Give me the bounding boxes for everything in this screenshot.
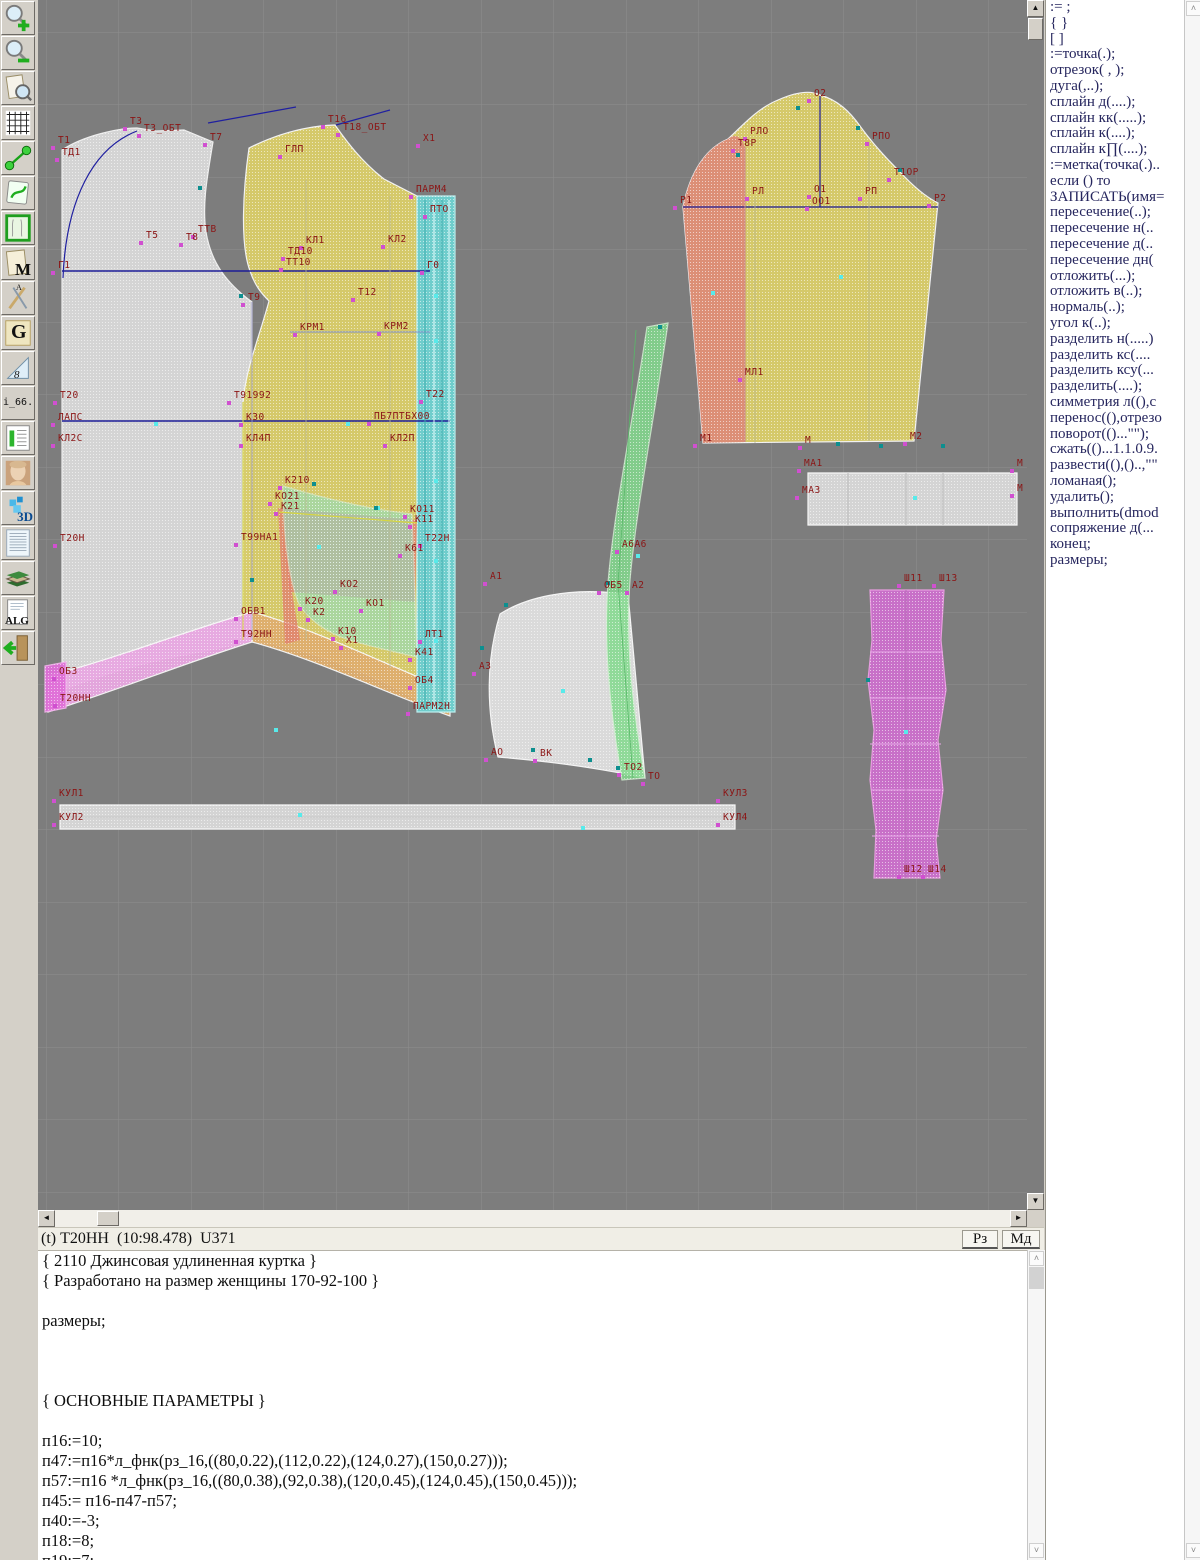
three-d-tool[interactable]: 3D: [1, 491, 35, 525]
command-item[interactable]: сжать(()...1.1.0.9.: [1046, 442, 1184, 458]
ruler-glyph: 8: [14, 370, 20, 381]
point-label: РЛО: [750, 126, 769, 137]
point-label: Т92НН: [241, 629, 272, 640]
g-curves-tool[interactable]: G: [1, 316, 35, 350]
point-marker: [798, 446, 802, 450]
point-marker: [359, 609, 363, 613]
editor-vscroll-thumb[interactable]: [1029, 1267, 1044, 1289]
cyan-marker: [434, 339, 438, 343]
editor-line: { 2110 Джинсовая удлиненная куртка }: [38, 1251, 1027, 1271]
editor-line: п19:=7;: [38, 1551, 1027, 1560]
scroll-left-button[interactable]: ◄: [38, 1210, 55, 1227]
cyan-marker: [154, 422, 158, 426]
command-item[interactable]: нормаль(..);: [1046, 300, 1184, 316]
point-label: Т1ОР: [894, 167, 919, 178]
panel-scroll-down-icon[interactable]: ˅: [1186, 1543, 1200, 1558]
command-item[interactable]: := ;: [1046, 0, 1184, 16]
point-label: ЛТ1: [425, 629, 444, 640]
teal-marker: [480, 646, 484, 650]
editor-line: { ОСНОВНЫЕ ПАРАМЕТРЫ }: [38, 1391, 1027, 1411]
point-marker: [55, 158, 59, 162]
m-document-tool[interactable]: M: [1, 246, 35, 280]
point-marker: [483, 582, 487, 586]
command-item[interactable]: разделить ксу(...: [1046, 363, 1184, 379]
point-marker: [406, 712, 410, 716]
point-label: Х1: [346, 635, 358, 646]
teal-marker: [941, 444, 945, 448]
point-label: ВК: [540, 748, 552, 759]
drafting-tool[interactable]: A: [1, 281, 35, 315]
teal-marker: [836, 442, 840, 446]
cyan-marker: [904, 730, 908, 734]
point-label: КУЛ4: [723, 812, 748, 823]
zoom-in-icon: [2, 2, 34, 34]
grid-icon: [2, 107, 34, 139]
point-marker: [597, 591, 601, 595]
point-label: К210: [285, 475, 310, 486]
point-marker: [693, 444, 697, 448]
editor-line: размеры;: [38, 1311, 1027, 1331]
point-label: Т99НА1: [241, 532, 278, 543]
pattern-frame-icon: [2, 212, 34, 244]
cyan-marker: [274, 728, 278, 732]
scroll-left-icon: ◄: [43, 1213, 51, 1222]
teal-marker: [856, 126, 860, 130]
point-label: Т18_ОБТ: [343, 122, 387, 133]
text-page-icon: [2, 527, 34, 559]
point-marker: [234, 640, 238, 644]
point-marker: [418, 640, 422, 644]
editor-line: [38, 1351, 1027, 1371]
point-label: Т9: [248, 292, 260, 303]
cyan-marker: [317, 545, 321, 549]
preview-tool[interactable]: [1, 71, 35, 105]
command-item[interactable]: конец;: [1046, 537, 1184, 553]
command-item[interactable]: разделить н(.....): [1046, 332, 1184, 348]
scroll-up-icon: ▲: [1032, 3, 1040, 12]
point-label: Ш11: [904, 573, 923, 584]
point-marker: [797, 469, 801, 473]
point-marker: [903, 442, 907, 446]
point-marker: [615, 550, 619, 554]
point-marker: [472, 672, 476, 676]
command-item[interactable]: сопряжение д(...: [1046, 521, 1184, 537]
editor-line: [38, 1371, 1027, 1391]
scroll-right-icon: ►: [1015, 1213, 1023, 1222]
g-curves-glyph: G: [11, 322, 27, 342]
measure-tool[interactable]: [1, 141, 35, 175]
point-label: Р1: [680, 195, 692, 206]
point-marker: [641, 782, 645, 786]
point-label: КЛ2: [388, 234, 407, 245]
command-item[interactable]: [ ]: [1046, 32, 1184, 48]
command-item[interactable]: угол к(..);: [1046, 316, 1184, 332]
command-item[interactable]: отложить в(..);: [1046, 284, 1184, 300]
alg-tool[interactable]: ALG: [1, 596, 35, 630]
point-marker: [403, 515, 407, 519]
point-marker: [239, 423, 243, 427]
point-label: Т1: [58, 135, 70, 146]
point-label: Т20Н: [60, 533, 85, 544]
canvas-vscroll-thumb[interactable]: [1028, 18, 1043, 40]
point-label: О1: [814, 184, 826, 195]
zoom-in-tool[interactable]: [1, 1, 35, 35]
point-label: Т12: [358, 287, 377, 298]
point-marker: [927, 204, 931, 208]
point-marker: [858, 197, 862, 201]
panel-scroll-up-icon[interactable]: ˄: [1186, 1, 1200, 16]
point-marker: [1010, 469, 1014, 473]
point-label: Т22: [426, 389, 445, 400]
point-marker: [738, 378, 742, 382]
command-item[interactable]: развести((),()..,"": [1046, 458, 1184, 474]
point-marker: [53, 401, 57, 405]
point-marker: [932, 584, 936, 588]
point-marker: [52, 677, 56, 681]
editor-vscrollbar[interactable]: ˄ ˅: [1027, 1250, 1045, 1560]
point-label: Х1: [423, 133, 435, 144]
point-label: Т7: [210, 132, 222, 143]
editor-scroll-down-icon[interactable]: ˅: [1029, 1543, 1044, 1558]
point-marker: [51, 146, 55, 150]
m-document-glyph: M: [15, 261, 31, 278]
editor-scroll-up-icon[interactable]: ˄: [1029, 1251, 1044, 1266]
books-tool[interactable]: [1, 561, 35, 595]
point-marker: [731, 149, 735, 153]
point-label: К21: [281, 501, 300, 512]
point-marker: [139, 241, 143, 245]
point-label: Т8: [186, 232, 198, 243]
editor-line: п18:=8;: [38, 1531, 1027, 1551]
point-marker: [137, 134, 141, 138]
point-marker: [51, 423, 55, 427]
point-marker: [367, 422, 371, 426]
point-marker: [333, 590, 337, 594]
point-marker: [278, 486, 282, 490]
sketch-tool[interactable]: [1, 176, 35, 210]
point-marker: [53, 544, 57, 548]
drawing-canvas[interactable]: Т1ТД1Т3Т3_ОБТТ7Т5Т8ТТВГ1Т9Т20ЛАПСКЛ2СТ20…: [38, 0, 1027, 1210]
point-label: К30: [246, 412, 265, 423]
scroll-up-button[interactable]: ▲: [1027, 0, 1044, 17]
point-label: КО1: [366, 598, 385, 609]
point-label: КРМ1: [300, 322, 325, 333]
command-item[interactable]: сплайн д(....);: [1046, 95, 1184, 111]
cyan-marker: [581, 826, 585, 830]
i66-tool[interactable]: i_66.: [1, 386, 35, 420]
point-label: ТД1: [62, 147, 81, 158]
point-label: Т3: [130, 116, 142, 127]
point-marker: [423, 215, 427, 219]
point-label: КО2: [340, 579, 359, 590]
command-item[interactable]: ЗАПИСАТЬ(имя=: [1046, 190, 1184, 206]
point-label: К20: [305, 596, 324, 607]
point-label: ОБ3: [59, 666, 78, 677]
pattern-cad-window: { "toolbar": { "items": [ {"name":"zoom-…: [0, 0, 1200, 1560]
teal-marker: [736, 153, 740, 157]
point-label: К41: [415, 647, 434, 658]
canvas-hscroll-thumb[interactable]: [97, 1211, 119, 1226]
drafting-glyph: A: [16, 284, 22, 292]
size-table-tool[interactable]: [1, 421, 35, 455]
teal-marker: [312, 482, 316, 486]
cyan-marker: [434, 559, 438, 563]
command-item[interactable]: поворот(()..."");: [1046, 427, 1184, 443]
command-item[interactable]: сплайн к(....);: [1046, 126, 1184, 142]
cyan-marker: [434, 294, 438, 298]
editor-line: [38, 1331, 1027, 1351]
left-toolbar: M A G 8 i_66. 3D ALG: [0, 0, 37, 1560]
teal-marker: [866, 678, 870, 682]
point-marker: [234, 543, 238, 547]
point-label: КЛ2П: [390, 433, 415, 444]
point-marker: [239, 444, 243, 448]
cyan-marker: [711, 291, 715, 295]
cyan-marker: [561, 689, 565, 693]
point-marker: [52, 823, 56, 827]
command-item[interactable]: пересечение дн(: [1046, 253, 1184, 269]
point-marker: [274, 512, 278, 516]
point-marker: [897, 584, 901, 588]
command-item[interactable]: пересечение(..);: [1046, 205, 1184, 221]
point-marker: [807, 195, 811, 199]
point-marker: [51, 271, 55, 275]
point-label: А1: [490, 571, 502, 582]
command-item[interactable]: сплайн кк(.....);: [1046, 111, 1184, 127]
three-d-glyph: 3D: [17, 510, 33, 523]
point-label: ПАРМ2Н: [413, 701, 450, 712]
zoom-out-tool[interactable]: [1, 36, 35, 70]
portrait-icon: [2, 457, 34, 489]
measure-icon: [2, 142, 34, 174]
point-marker: [897, 875, 901, 879]
command-item[interactable]: симметрия л((),с: [1046, 395, 1184, 411]
point-marker: [625, 591, 629, 595]
point-marker: [408, 686, 412, 690]
point-marker: [227, 401, 231, 405]
pattern-drawing[interactable]: Т1ТД1Т3Т3_ОБТТ7Т5Т8ТТВГ1Т9Т20ЛАПСКЛ2СТ20…: [38, 0, 1027, 1210]
point-label: ПАРМ4: [416, 184, 447, 195]
command-item[interactable]: выполнить(dmod: [1046, 506, 1184, 522]
command-item[interactable]: удалить();: [1046, 490, 1184, 506]
point-label: А3: [479, 661, 491, 672]
point-marker: [203, 143, 207, 147]
point-label: М: [805, 435, 811, 446]
scroll-right-button[interactable]: ►: [1010, 1210, 1027, 1227]
point-marker: [408, 525, 412, 529]
point-marker: [416, 144, 420, 148]
point-label: АО: [491, 747, 503, 758]
point-label: К61: [405, 543, 424, 554]
teal-marker: [796, 106, 800, 110]
cyan-marker: [346, 422, 350, 426]
point-label: ПБ7ПТБХ00: [374, 411, 430, 422]
preview-icon: [2, 72, 34, 104]
point-marker: [533, 759, 537, 763]
point-label: Т5: [146, 230, 158, 241]
point-marker: [293, 333, 297, 337]
point-label: М1: [700, 433, 712, 444]
command-item[interactable]: отрезок( , );: [1046, 63, 1184, 79]
cyan-marker: [298, 813, 302, 817]
command-item[interactable]: ломаная();: [1046, 474, 1184, 490]
command-item[interactable]: размеры;: [1046, 553, 1184, 569]
point-label: ОО1: [812, 196, 831, 207]
teal-marker: [616, 766, 620, 770]
point-marker: [52, 799, 56, 803]
point-marker: [241, 303, 245, 307]
point-label: Т91992: [234, 390, 271, 401]
point-marker: [716, 799, 720, 803]
point-marker: [409, 195, 413, 199]
editor-line: п57:=п16 *л_фнк(рз_16,((80,0.38),(92,0.3…: [38, 1471, 1027, 1491]
point-label: М2: [910, 431, 922, 442]
point-marker: [1010, 494, 1014, 498]
point-marker: [53, 704, 57, 708]
point-marker: [408, 658, 412, 662]
grid-tool[interactable]: [1, 106, 35, 140]
point-label: Т3_ОБТ: [144, 123, 181, 134]
point-marker: [745, 197, 749, 201]
point-label: ТТВ: [198, 224, 217, 235]
point-label: ТО: [648, 771, 660, 782]
point-label: КУЛ3: [723, 788, 748, 799]
point-marker: [420, 271, 424, 275]
point-label: А6А6: [622, 539, 647, 550]
cyan-marker: [839, 275, 843, 279]
point-marker: [484, 758, 488, 762]
teal-marker: [531, 748, 535, 752]
point-label: М: [1017, 483, 1023, 494]
teal-marker: [658, 325, 662, 329]
point-label: РЛ: [752, 186, 764, 197]
md-button[interactable]: Мд: [1002, 1230, 1040, 1249]
point-label: ТТ10: [286, 257, 311, 268]
point-label: РПО: [872, 131, 891, 142]
rz-button[interactable]: Рз: [962, 1230, 998, 1249]
point-marker: [673, 206, 677, 210]
point-marker: [306, 618, 310, 622]
command-item[interactable]: дуга(,..);: [1046, 79, 1184, 95]
point-marker: [281, 257, 285, 261]
portrait-tool[interactable]: [1, 456, 35, 490]
command-item[interactable]: пересечение н(..: [1046, 221, 1184, 237]
point-marker: [339, 646, 343, 650]
point-marker: [234, 617, 238, 621]
i66-glyph: i_66.: [3, 398, 33, 408]
zoom-out-icon: [2, 37, 34, 69]
cyan-marker: [434, 479, 438, 483]
command-item[interactable]: сплайн к∏(....);: [1046, 142, 1184, 158]
books-icon: [2, 562, 34, 594]
point-label: О2: [814, 88, 826, 99]
ruler-tool[interactable]: 8: [1, 351, 35, 385]
cyan-marker: [913, 496, 917, 500]
cuff-strip-mesh: [808, 473, 1017, 525]
command-item[interactable]: :=метка(точка(.)..: [1046, 158, 1184, 174]
command-item[interactable]: :=точка(.);: [1046, 47, 1184, 63]
point-marker: [716, 823, 720, 827]
point-marker: [805, 207, 809, 211]
pattern-frame-tool[interactable]: [1, 211, 35, 245]
point-label: ТО2: [624, 762, 643, 773]
point-marker: [377, 332, 381, 336]
point-label: КЛ2С: [58, 433, 83, 444]
editor-line: [38, 1411, 1027, 1431]
command-item[interactable]: перенос((),отрезо: [1046, 411, 1184, 427]
editor-line: п47:=п16*л_фнк(рз_16,((80,0.22),(112,0.2…: [38, 1451, 1027, 1471]
point-marker: [123, 127, 127, 131]
exit-tool[interactable]: [1, 631, 35, 665]
point-marker: [921, 875, 925, 879]
editor-line: п40:=-3;: [38, 1511, 1027, 1531]
panel-vscrollbar[interactable]: ˄ ˅: [1184, 0, 1200, 1560]
point-label: Ш12: [904, 864, 923, 875]
point-marker: [279, 268, 283, 272]
teal-marker: [250, 578, 254, 582]
text-page-tool[interactable]: [1, 526, 35, 560]
command-item[interactable]: отложить(...);: [1046, 269, 1184, 285]
point-marker: [887, 178, 891, 182]
point-label: КУЛ2: [59, 812, 84, 823]
point-label: ОБ4: [415, 675, 434, 686]
teal-marker: [504, 603, 508, 607]
point-label: Ш14: [928, 864, 947, 875]
code-editor[interactable]: { 2110 Джинсовая удлиненная куртка }{ Ра…: [38, 1250, 1027, 1560]
alg-glyph: ALG: [5, 616, 29, 627]
point-label: Ш13: [939, 573, 958, 584]
point-label: МА1: [804, 458, 823, 469]
point-marker: [617, 773, 621, 777]
scroll-down-button[interactable]: ▼: [1027, 1193, 1044, 1210]
point-marker: [179, 243, 183, 247]
command-item[interactable]: разделить кс(....: [1046, 348, 1184, 364]
point-label: РП: [865, 186, 877, 197]
canvas-hscrollbar[interactable]: ◄ ►: [38, 1210, 1027, 1227]
point-marker: [795, 496, 799, 500]
scroll-down-icon: ▼: [1032, 1196, 1040, 1205]
point-marker: [865, 142, 869, 146]
teal-marker: [198, 186, 202, 190]
point-label: МЛ1: [745, 367, 764, 378]
canvas-vscrollbar[interactable]: ▲ ▼: [1027, 0, 1044, 1210]
point-marker: [383, 444, 387, 448]
point-label: МА3: [802, 485, 821, 496]
sketch-icon: [2, 177, 34, 209]
point-label: Р2: [934, 193, 946, 204]
command-item[interactable]: пересечение д(..: [1046, 237, 1184, 253]
editor-line: п45:= п16-п47-п57;: [38, 1491, 1027, 1511]
point-marker: [336, 133, 340, 137]
command-item[interactable]: { }: [1046, 16, 1184, 32]
command-panel: := ;{ }[ ]:=точка(.);отрезок( , );дуга(,…: [1045, 0, 1184, 1560]
command-item[interactable]: разделить(....);: [1046, 379, 1184, 395]
exit-icon: [2, 632, 34, 664]
point-label: КРМ2: [384, 321, 409, 332]
editor-line: [38, 1291, 1027, 1311]
editor-line: { Разработано на размер женщины 170-92-1…: [38, 1271, 1027, 1291]
point-marker: [321, 125, 325, 129]
point-marker: [298, 607, 302, 611]
size-table-icon: [2, 422, 34, 454]
teal-marker: [879, 444, 883, 448]
point-label: М: [1017, 458, 1023, 469]
point-label: ТД10: [288, 246, 313, 257]
point-label: КЛ4П: [246, 433, 271, 444]
command-item[interactable]: если () то: [1046, 174, 1184, 190]
point-label: К2: [313, 607, 325, 618]
point-marker: [398, 554, 402, 558]
